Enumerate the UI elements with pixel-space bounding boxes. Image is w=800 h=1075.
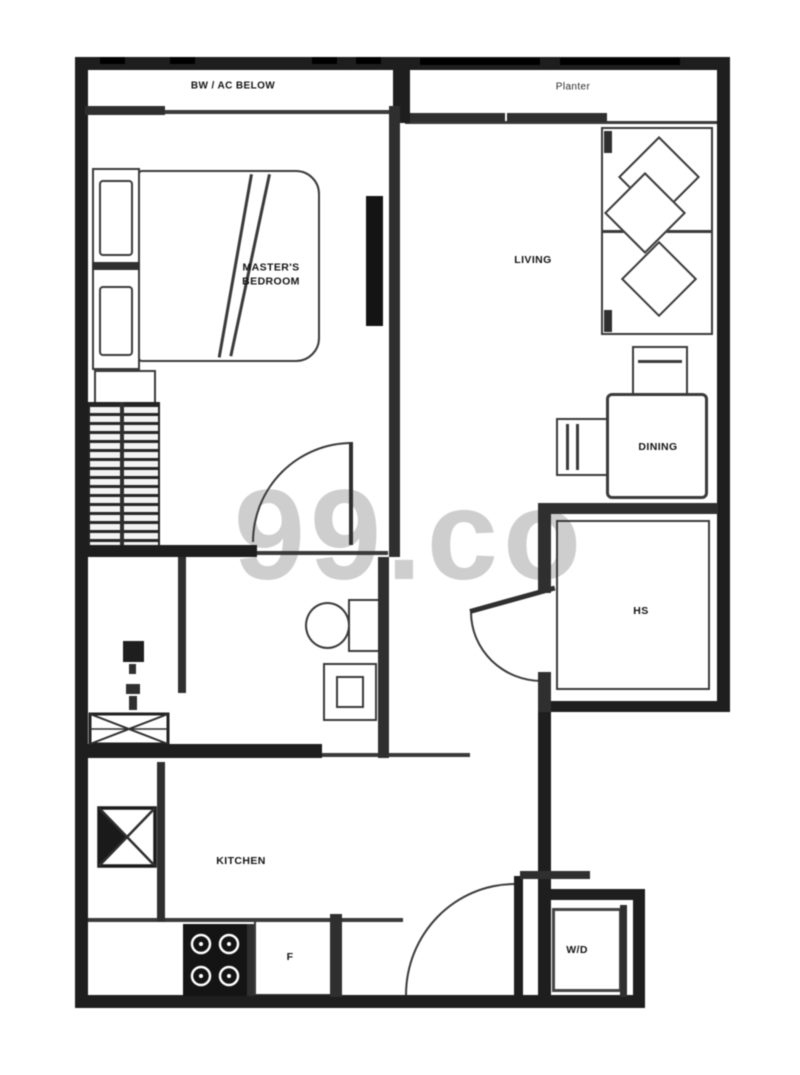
bedroom-window-bar: [366, 196, 383, 326]
entrance-door-leaf: [514, 876, 523, 997]
bw-ledge-wall: [85, 106, 165, 115]
wall-bedroom-living: [389, 106, 400, 557]
wall-counter-right: [330, 914, 342, 997]
dining-chair-back-line: [566, 424, 569, 470]
shaft-icon: [88, 712, 170, 746]
dining-chair-left: [556, 418, 608, 476]
floor-trap-icon: [126, 684, 140, 694]
label-fridge: F: [287, 951, 294, 965]
wall-hs-top: [538, 503, 718, 514]
label-planter: Planter: [556, 81, 591, 94]
sofa-armrest: [604, 131, 612, 153]
wall-hs-left-lower: [538, 672, 551, 712]
wall-left: [75, 57, 88, 1008]
fridge: [254, 918, 336, 996]
bathroom-sink-basin: [336, 676, 364, 708]
bedroom-door-leaf: [349, 442, 353, 545]
floor-trap-icon: [129, 696, 137, 710]
dining-chair-back-line: [576, 424, 579, 470]
wall-right: [717, 57, 730, 712]
wall-wd-top: [538, 889, 645, 900]
wall-bathroom-bottom: [85, 744, 322, 758]
wardrobe-divider: [120, 402, 124, 550]
shower-icon: [123, 641, 144, 662]
label-dining: DINING: [638, 441, 677, 455]
label-master-bedroom-line1: MASTER'S: [242, 261, 300, 275]
toilet-icon: [305, 602, 350, 649]
wall-tick: [100, 57, 125, 64]
wall-tick: [560, 58, 680, 65]
wall-tick: [312, 57, 337, 64]
wall-tick: [420, 58, 540, 65]
label-living: LIVING: [514, 254, 551, 268]
wall-tick: [170, 57, 195, 64]
bathroom-bottom-line: [320, 753, 470, 757]
dining-chair-back-line: [638, 360, 682, 363]
hs-door-arc: [470, 612, 542, 682]
dining-chair-top: [632, 346, 688, 396]
wall-bottom: [75, 995, 645, 1008]
headboard-divider: [92, 262, 140, 270]
wall-hs-bottom: [538, 701, 730, 712]
pillow: [99, 286, 133, 356]
floor-plan: 99.co: [0, 0, 800, 1075]
label-master-bedroom: MASTER'S BEDROOM: [242, 261, 300, 288]
shower-partition: [178, 557, 186, 693]
floor-plan-drawing: 99.co: [0, 0, 800, 1075]
kitchen-sink-icon: [97, 806, 157, 868]
stove-icon: [183, 924, 247, 996]
entry-wall-stub: [520, 871, 590, 879]
pillow: [99, 180, 133, 256]
entrance-door-arc: [405, 883, 515, 995]
planter-sill-segment: [507, 113, 607, 122]
shower-stem: [129, 664, 136, 674]
wardrobe: [88, 402, 160, 550]
label-hs: HS: [633, 605, 648, 619]
wall-hs-left-upper: [538, 503, 551, 593]
wall-bedroom-bottom: [85, 545, 257, 557]
planter-sill-segment: [410, 113, 505, 122]
counter-line: [88, 918, 164, 922]
wall-bathroom-right: [378, 557, 389, 758]
door-threshold-line: [255, 551, 388, 555]
counter-divider: [247, 924, 254, 996]
toilet-cistern: [348, 599, 381, 652]
wall-tick: [356, 57, 381, 64]
label-bw-ac-below: BW / AC BELOW: [191, 80, 275, 93]
label-master-bedroom-line2: BEDROOM: [242, 275, 300, 289]
wall-right-step: [538, 701, 551, 1001]
sofa-armrest: [604, 310, 612, 332]
wd-inner-wall: [620, 905, 627, 997]
label-kitchen: KITCHEN: [216, 855, 265, 869]
label-washer-dryer: W/D: [566, 944, 588, 958]
wall-wd-right: [633, 889, 645, 1008]
wall-kitchen-strip: [157, 762, 165, 922]
